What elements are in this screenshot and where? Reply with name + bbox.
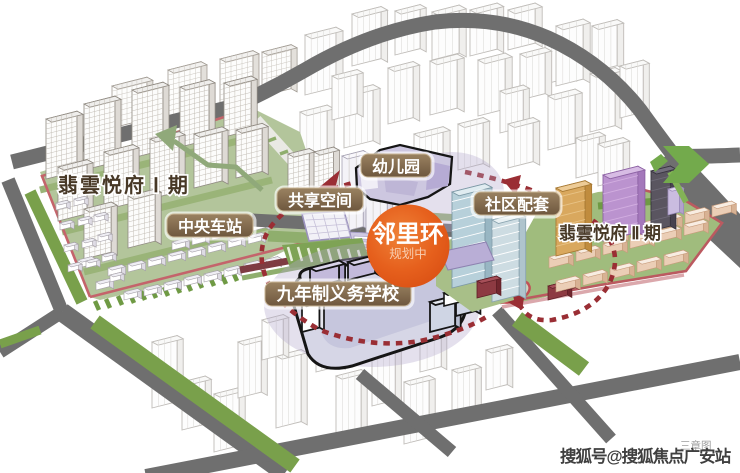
svg-text:搜狐号@搜狐焦点广安站: 搜狐号@搜狐焦点广安站: [560, 446, 732, 466]
svg-text:翡雲悦府 Ⅰ 期: 翡雲悦府 Ⅰ 期: [58, 173, 190, 197]
svg-text:中央车站: 中央车站: [178, 217, 242, 236]
svg-text:翡雲悦府 Ⅱ 期: 翡雲悦府 Ⅱ 期: [559, 223, 661, 243]
svg-text:规划中: 规划中: [389, 246, 427, 261]
svg-text:共享空间: 共享空间: [288, 191, 352, 210]
svg-text:九年制义务学校: 九年制义务学校: [276, 284, 400, 304]
svg-text:社区配套: 社区配套: [484, 195, 550, 214]
svg-text:邻里环: 邻里环: [372, 221, 444, 248]
svg-text:幼儿园: 幼儿园: [372, 157, 420, 176]
